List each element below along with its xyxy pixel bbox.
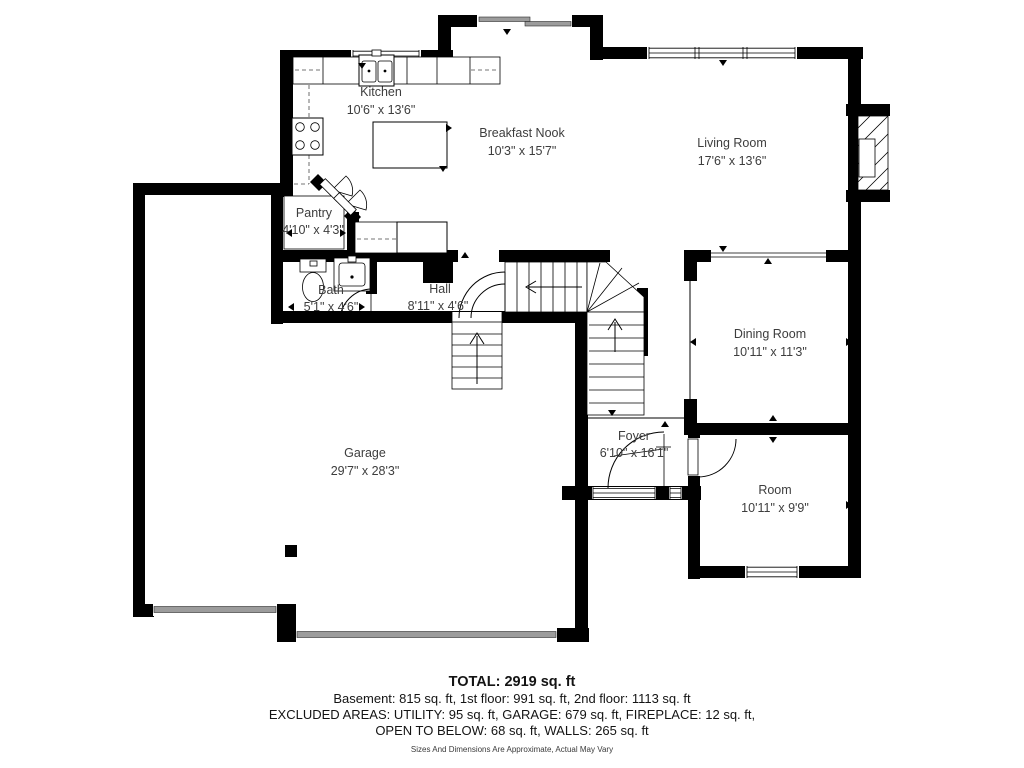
garage-door-small bbox=[153, 604, 277, 616]
disclaimer-text: Sizes And Dimensions Are Approximate, Ac… bbox=[411, 745, 613, 754]
floor-plan-page: Kitchen 10'6" x 13'6" Breakfast Nook 10'… bbox=[0, 0, 1024, 768]
room-label-bath: Bath bbox=[318, 283, 344, 297]
main-staircase bbox=[505, 262, 644, 415]
room-dims-bath: 5'1" x 4'6" bbox=[304, 300, 359, 314]
room-label-foyer: Foyer bbox=[618, 429, 650, 443]
nook-sliding-door bbox=[477, 15, 572, 27]
basement-staircase bbox=[452, 312, 502, 389]
room-dims-dining-room: 10'11" x 11'3" bbox=[733, 345, 807, 359]
room-label-garage: Garage bbox=[344, 446, 386, 460]
total-area-text: TOTAL: 2919 sq. ft bbox=[449, 674, 576, 690]
kitchen-counter bbox=[293, 57, 500, 84]
room-label-breakfast-nook: Breakfast Nook bbox=[479, 126, 565, 140]
room-dims-room: 10'11" x 9'9" bbox=[741, 501, 809, 515]
room-dims-kitchen: 10'6" x 13'6" bbox=[347, 103, 416, 117]
room-label-kitchen: Kitchen bbox=[360, 85, 402, 99]
floor-areas-text: Basement: 815 sq. ft, 1st floor: 991 sq.… bbox=[333, 691, 691, 706]
interior-walls bbox=[271, 196, 849, 579]
excluded-areas-text: EXCLUDED AREAS: UTILITY: 95 sq. ft, GARA… bbox=[269, 707, 755, 722]
living-room-window bbox=[647, 47, 797, 59]
room-dims-hall: 8'11" x 4'6" bbox=[408, 299, 469, 313]
room-door bbox=[687, 438, 736, 477]
kitchen-sink bbox=[359, 50, 394, 86]
room-label-pantry: Pantry bbox=[296, 206, 333, 220]
floor-plan-drawing: Kitchen 10'6" x 13'6" Breakfast Nook 10'… bbox=[0, 0, 1024, 768]
room-dims-living-room: 17'6" x 13'6" bbox=[698, 154, 767, 168]
room-label-hall: Hall bbox=[429, 282, 451, 296]
area-summary: TOTAL: 2919 sq. ft Basement: 815 sq. ft,… bbox=[269, 674, 755, 754]
room-dims-breakfast-nook: 10'3" x 15'7" bbox=[488, 144, 557, 158]
room-label-living-room: Living Room bbox=[697, 136, 766, 150]
room-dims-pantry: 4'10" x 4'3" bbox=[282, 223, 344, 237]
room-label-room: Room bbox=[758, 483, 791, 497]
room-dims-garage: 29'7" x 28'3" bbox=[331, 464, 400, 478]
room-dims-foyer: 6'10" x 16'1" bbox=[600, 446, 669, 460]
kitchen-island bbox=[373, 122, 447, 168]
chase bbox=[423, 256, 453, 283]
stove bbox=[292, 118, 323, 155]
garage-post bbox=[285, 545, 297, 557]
open-below-text: OPEN TO BELOW: 68 sq. ft, WALLS: 265 sq.… bbox=[375, 723, 649, 738]
room-label-dining-room: Dining Room bbox=[734, 327, 806, 341]
room-window bbox=[745, 566, 799, 578]
garage-door-main bbox=[296, 629, 557, 641]
counter-and-fridge bbox=[355, 222, 447, 253]
